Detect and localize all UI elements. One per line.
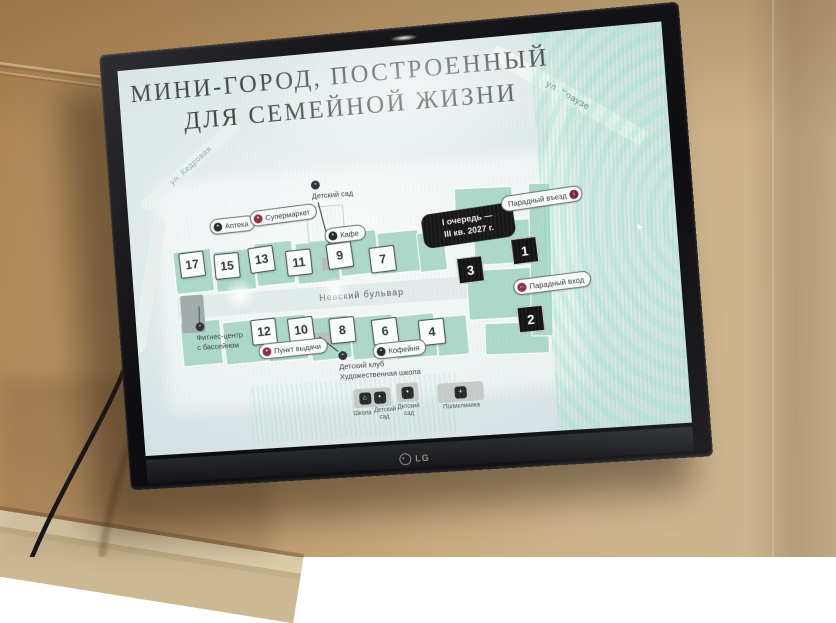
lg-logo-text: LG [415, 453, 430, 464]
legend-box-polyclinic: + [437, 381, 484, 403]
legend-kindergarten-label-a: Детский сад [374, 407, 395, 421]
fitness-callout-icon: • [195, 322, 204, 331]
legend-box-school-kindergarten: ⌂ • [353, 387, 392, 408]
phase-sq-2: 2 [516, 305, 545, 334]
kindergarten-callout-icon: • [311, 180, 320, 190]
poi-pickup-label: Пункт выдачи [274, 341, 322, 355]
pharmacy-icon: + [213, 222, 223, 232]
kindergarten-icon: • [401, 386, 414, 399]
poi-supermarket-label: Супермаркет [265, 207, 310, 222]
poi-pharmacy-label: Аптека [225, 219, 249, 231]
bezel-glint [390, 34, 418, 43]
building-sq-13: 13 [247, 245, 276, 274]
callout-kids-club: • Детский клуб Художественная школа [338, 346, 421, 382]
masterplan-slide: ул. Кедровая ул. Краузе Невский бульвар [117, 21, 691, 456]
main-drive-icon: ↓ [569, 189, 579, 199]
phase-sq-3: 3 [456, 255, 485, 284]
building-sq-7: 7 [368, 245, 397, 274]
lg-logo: LG [399, 452, 430, 466]
legend-box-kindergarten: • [396, 382, 419, 402]
polyclinic-icon: + [454, 386, 467, 399]
building-sq-9: 9 [325, 241, 354, 270]
building-sq-17: 17 [178, 250, 206, 279]
main-entrance-icon: ← [517, 282, 527, 292]
school-icon: ⌂ [358, 392, 371, 405]
pickup-icon: ▪ [262, 346, 272, 356]
cafe-icon: • [328, 231, 338, 241]
lg-logo-icon [399, 453, 412, 466]
tv-screen: ул. Кедровая ул. Краузе Невский бульвар [117, 21, 691, 456]
poi-main-entrance-label: Парадный вход [529, 275, 585, 291]
callout-kindergarten: • Детский сад [311, 178, 354, 202]
poi-cafe-label: Кафе [340, 228, 359, 239]
building-sq-15: 15 [213, 252, 240, 280]
kindergarten-icon: • [373, 391, 386, 404]
building-sq-8: 8 [328, 316, 356, 344]
tv-frame: ул. Кедровая ул. Краузе Невский бульвар [99, 1, 713, 490]
building-sq-11: 11 [285, 248, 313, 276]
kids-club-callout-icon: • [338, 351, 348, 361]
legend-kindergarten-label-b: Детский сад [397, 403, 422, 418]
supermarket-icon: ▪ [253, 213, 263, 223]
callout-fitness: • Фитнес-центр с бассейном [195, 319, 244, 352]
wall-background: ул. Кедровая ул. Краузе Невский бульвар [0, 0, 836, 557]
phase-sq-1: 1 [510, 236, 539, 265]
